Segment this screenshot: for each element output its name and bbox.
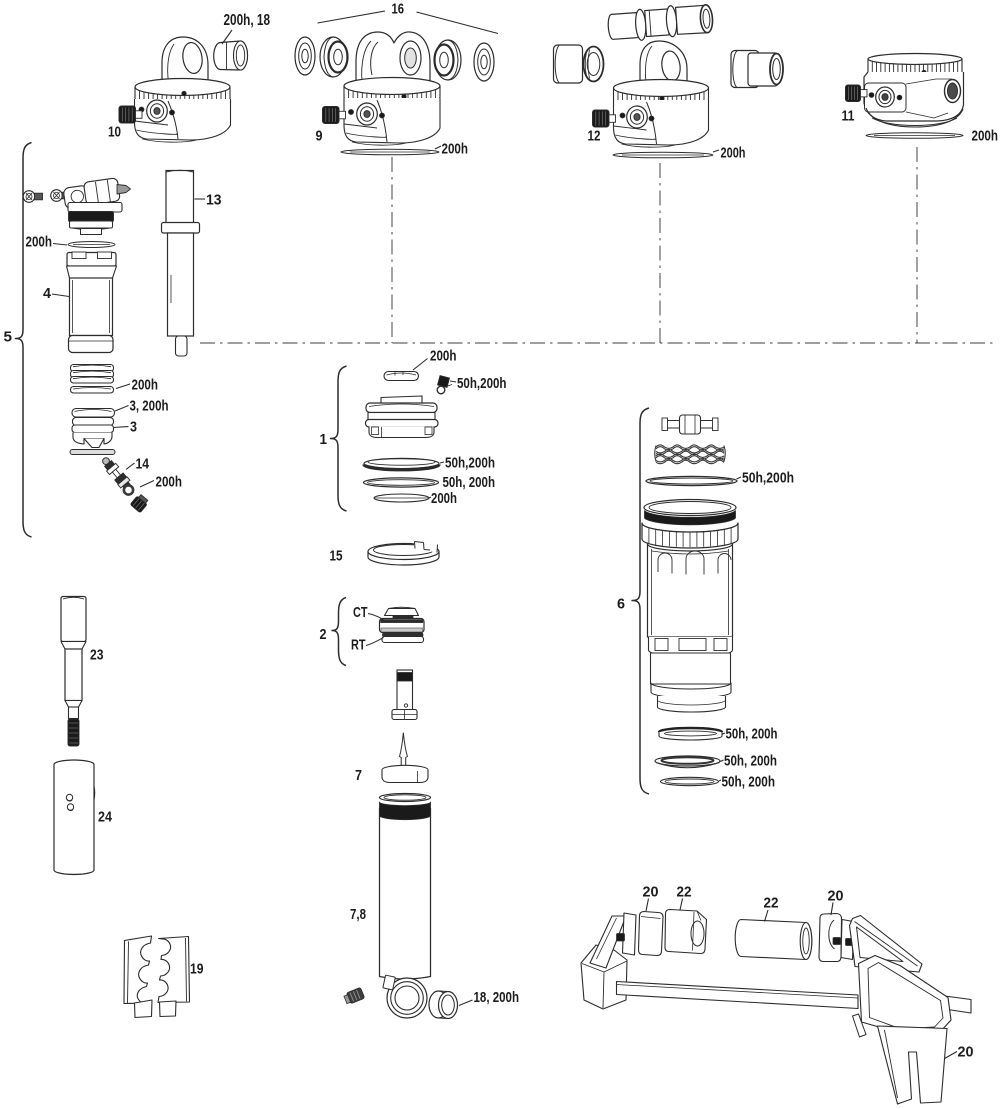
svg-text:50h, 200h: 50h, 200h xyxy=(722,774,776,791)
svg-text:50h, 200h: 50h, 200h xyxy=(443,474,496,491)
svg-text:4: 4 xyxy=(43,285,52,302)
svg-text:200h: 200h xyxy=(972,127,999,144)
svg-text:RT: RT xyxy=(351,637,366,654)
svg-text:14: 14 xyxy=(136,455,150,472)
svg-text:9: 9 xyxy=(316,127,323,144)
svg-text:10: 10 xyxy=(108,123,121,140)
svg-text:15: 15 xyxy=(330,548,343,565)
svg-text:22: 22 xyxy=(764,895,779,912)
svg-text:24: 24 xyxy=(98,809,113,826)
svg-text:200h, 18: 200h, 18 xyxy=(224,12,271,29)
svg-text:200h: 200h xyxy=(430,347,457,364)
svg-text:3: 3 xyxy=(130,418,137,435)
svg-text:2: 2 xyxy=(320,626,327,643)
svg-text:50h, 200h: 50h, 200h xyxy=(724,753,777,770)
svg-text:5: 5 xyxy=(4,328,13,345)
svg-text:200h: 200h xyxy=(431,490,457,507)
svg-text:CT: CT xyxy=(353,604,368,621)
svg-text:16: 16 xyxy=(392,0,405,17)
svg-text:200h: 200h xyxy=(156,473,183,490)
svg-text:12: 12 xyxy=(588,127,601,144)
svg-text:1: 1 xyxy=(320,431,328,448)
svg-text:20: 20 xyxy=(958,1044,974,1061)
svg-text:23: 23 xyxy=(90,647,104,664)
svg-text:50h,200h: 50h,200h xyxy=(445,454,495,471)
svg-text:200h: 200h xyxy=(442,140,469,157)
svg-text:13: 13 xyxy=(206,191,222,208)
svg-text:50h, 200h: 50h, 200h xyxy=(726,726,778,743)
svg-text:7: 7 xyxy=(355,767,362,784)
svg-text:18, 200h: 18, 200h xyxy=(474,989,520,1006)
svg-text:20: 20 xyxy=(643,884,659,901)
svg-text:200h: 200h xyxy=(721,144,746,161)
svg-text:22: 22 xyxy=(677,884,692,901)
svg-text:200h: 200h xyxy=(26,233,53,250)
svg-text:19: 19 xyxy=(190,961,204,978)
svg-text:20: 20 xyxy=(828,888,844,905)
svg-text:50h,200h: 50h,200h xyxy=(742,469,794,486)
svg-text:7,8: 7,8 xyxy=(350,906,366,923)
svg-text:3, 200h: 3, 200h xyxy=(130,397,169,414)
svg-text:6: 6 xyxy=(617,596,625,613)
svg-text:11: 11 xyxy=(842,108,855,125)
svg-text:200h: 200h xyxy=(132,376,159,393)
svg-text:50h,200h: 50h,200h xyxy=(457,375,507,392)
